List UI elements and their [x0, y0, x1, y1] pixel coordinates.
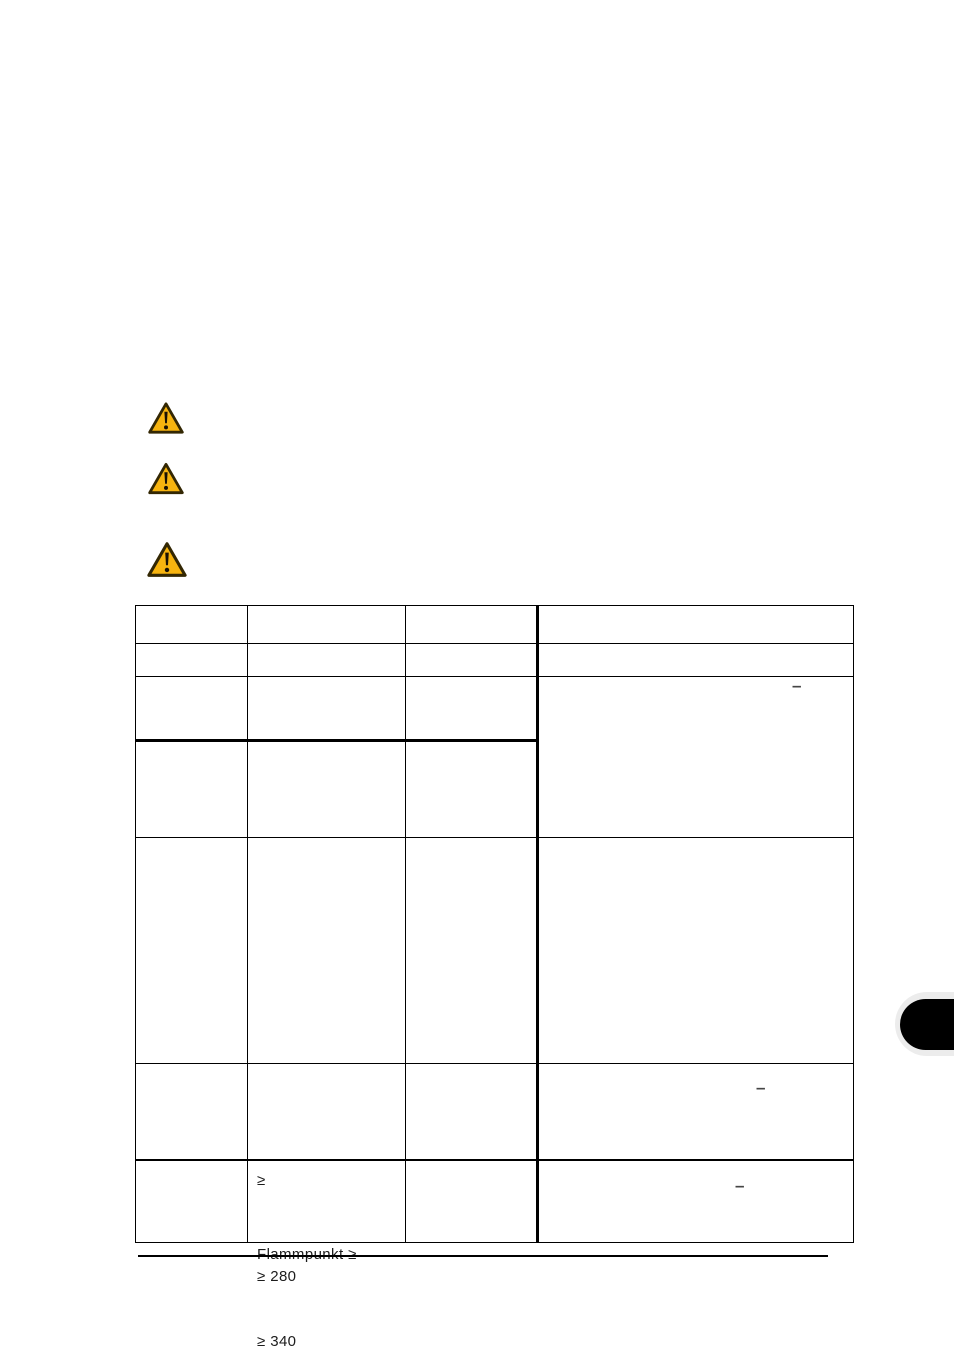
table-cell — [406, 742, 539, 838]
table-cell — [248, 606, 406, 644]
table-cell: Flammpunkt ≥ ≥ 340 — [248, 1161, 406, 1242]
table-cell-merged: – — [539, 677, 853, 838]
table-cell — [136, 838, 248, 1064]
dash-value: – — [756, 1080, 765, 1096]
thumb-index-tab-halo — [895, 992, 954, 1056]
table-cell — [248, 742, 406, 838]
warning-icon — [147, 541, 187, 578]
table-cell: – — [539, 1064, 853, 1161]
table-cell — [248, 644, 406, 677]
table-cell — [406, 606, 539, 644]
table-cell — [539, 644, 853, 677]
table-cell — [136, 1064, 248, 1161]
table-cell — [248, 677, 406, 742]
footer-rule — [138, 1255, 828, 1257]
data-table: – ≥ ≥ 280 – Flammpunkt ≥ ≥ 340 — [135, 605, 854, 1243]
table-cell — [406, 644, 539, 677]
table-cell — [136, 742, 248, 838]
dash-value: – — [735, 1178, 744, 1194]
table-cell — [406, 677, 539, 742]
table-cell — [406, 1161, 539, 1242]
dash-value: – — [792, 678, 801, 694]
table-cell — [406, 1064, 539, 1161]
table-cell — [539, 606, 853, 644]
table-cell — [539, 838, 853, 1064]
table-cell — [136, 644, 248, 677]
warning-icon — [148, 402, 184, 434]
cell-text-line: ≥ 340 — [257, 1327, 405, 1350]
table-cell — [136, 677, 248, 742]
warning-icon — [148, 462, 184, 495]
table-cell — [248, 838, 406, 1064]
table-cell: – — [539, 1161, 853, 1242]
table-cell — [406, 838, 539, 1064]
thumb-index-tab — [900, 999, 954, 1050]
table-cell: ≥ ≥ 280 — [248, 1064, 406, 1161]
table-cell — [136, 606, 248, 644]
table-cell — [136, 1161, 248, 1242]
document-page: – ≥ ≥ 280 – Flammpunkt ≥ ≥ 340 — [0, 0, 954, 1350]
